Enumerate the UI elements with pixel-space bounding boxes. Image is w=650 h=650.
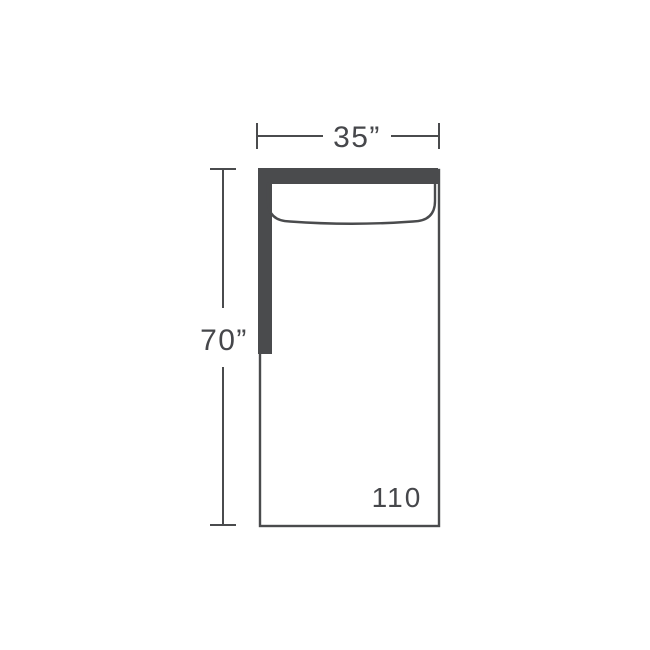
- sofa-back-rail: [258, 168, 438, 184]
- furniture-spec-diagram: 35” 70” 110: [0, 0, 650, 650]
- spec-diagram-canvas: 35” 70” 110: [0, 0, 650, 650]
- depth-dimension: 70”: [200, 169, 248, 525]
- sofa-left-arm-rail: [258, 168, 272, 354]
- width-label: 35”: [333, 121, 381, 154]
- width-dimension: 35”: [257, 121, 439, 154]
- depth-label: 70”: [200, 324, 248, 357]
- product-code-label: 110: [372, 482, 423, 513]
- sofa-module: 110: [258, 168, 439, 526]
